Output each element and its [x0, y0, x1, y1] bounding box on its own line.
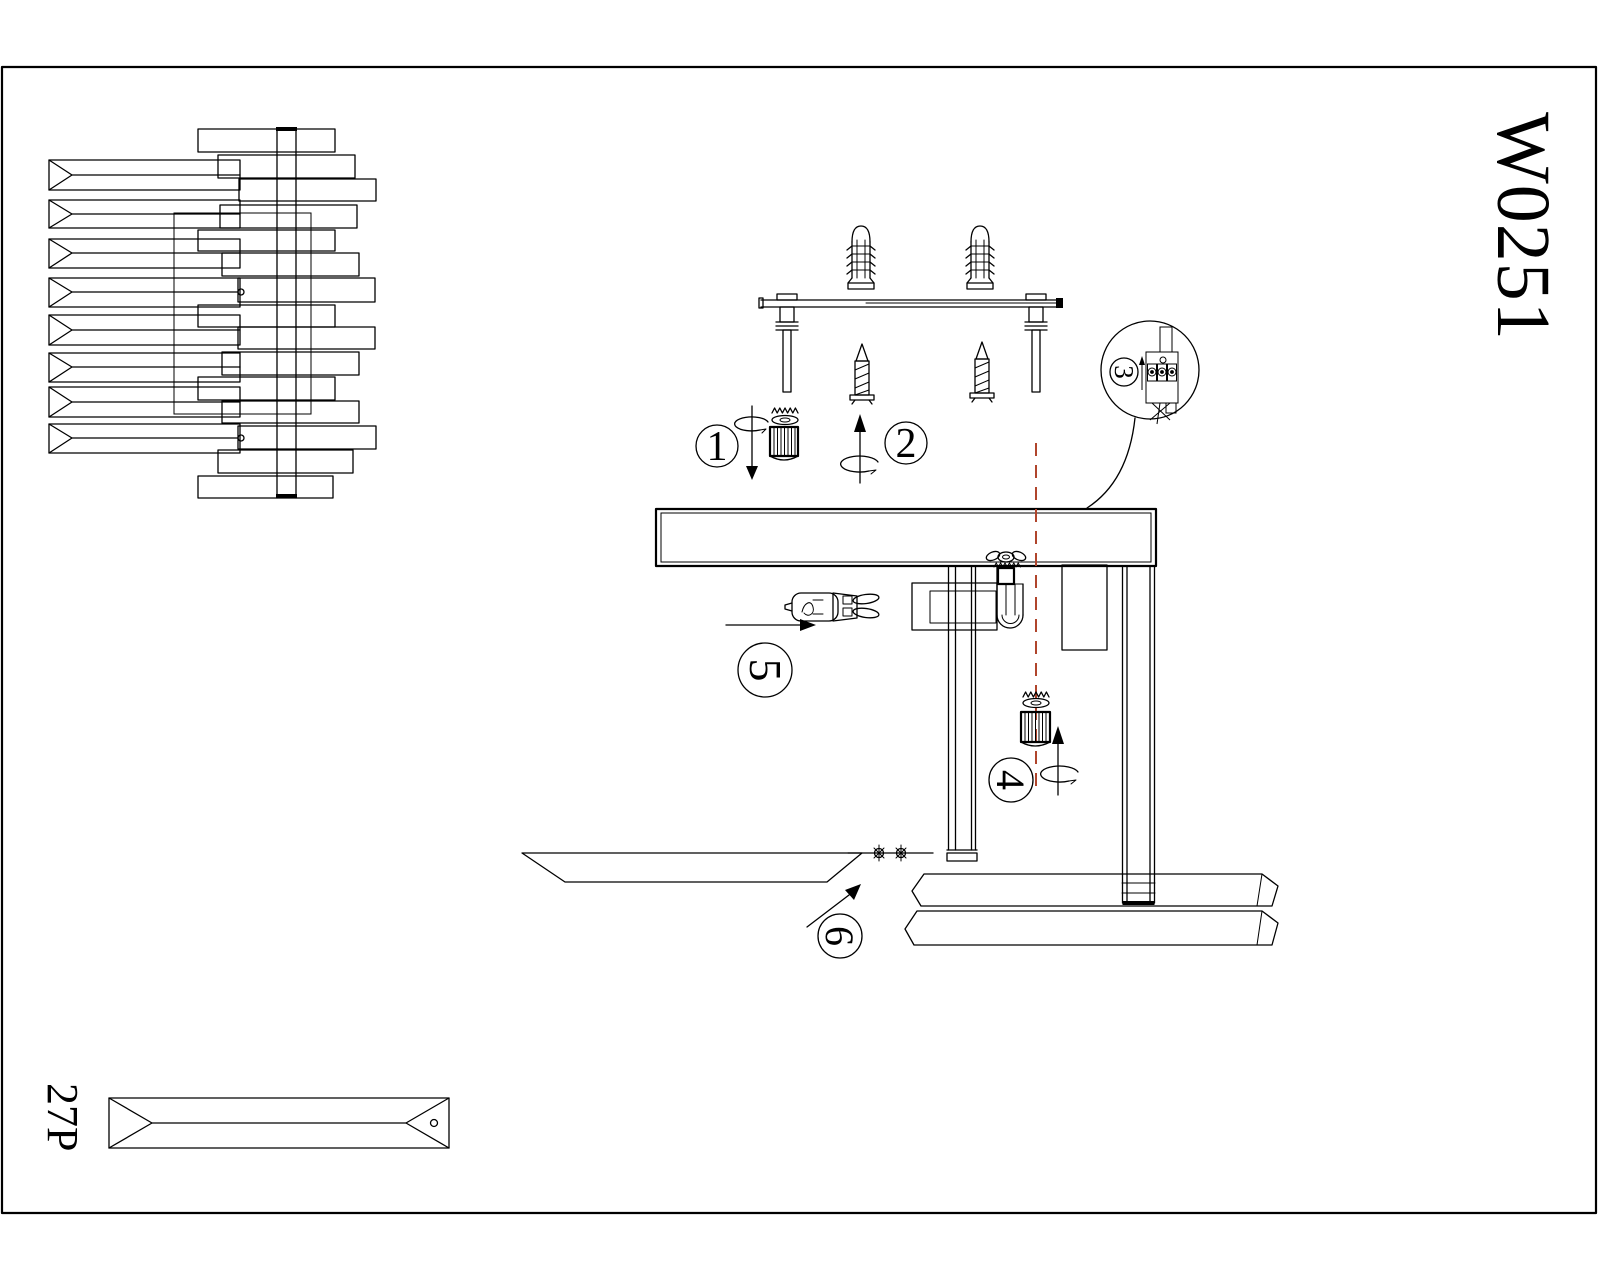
hook-connector-icon [848, 845, 933, 861]
step-1-group: 1 [696, 406, 798, 480]
socket-hanger-tubes [947, 567, 977, 861]
assembled-fixture-front-view [49, 127, 376, 498]
threaded-stud-right [1025, 294, 1047, 392]
threaded-stud-left [776, 294, 798, 392]
detail-leader-line [1087, 418, 1135, 508]
step-6-group: 6 [522, 845, 933, 958]
attach-arrow-icon [807, 884, 861, 927]
wing-screw-icon [985, 550, 1027, 567]
step-3-wiring-detail: 3 [1087, 321, 1199, 508]
mounting-bracket-bar [759, 298, 1063, 308]
sheet-border-frame [2, 67, 1596, 1213]
fixture-canopy [656, 509, 1156, 566]
step-2-group: 2 [841, 414, 927, 483]
step-3-number: 3 [1109, 365, 1139, 379]
step-4-number: 4 [988, 770, 1033, 790]
crystal-part-code-label: 27P [38, 1083, 87, 1151]
lamp-socket-assembly [912, 550, 1027, 861]
toothed-washer-icon [772, 408, 798, 425]
step-6-number: 6 [817, 926, 862, 946]
crystal-part-drawing [109, 1098, 449, 1148]
step-2-number: 2 [896, 421, 917, 467]
step-5-group: 5 [726, 593, 879, 697]
bottom-beam-bars [905, 874, 1278, 945]
halogen-bulb-icon [785, 593, 879, 621]
terminal-block-icon [1146, 327, 1178, 424]
front-crystal-bars [49, 160, 244, 453]
knurled-nut-icon [770, 427, 798, 460]
screw-up-rotation-arrow-icon [841, 414, 878, 483]
socket-side-bracket [997, 567, 1023, 628]
step-4-group: 4 [988, 692, 1078, 802]
crystal-bar-icon [522, 853, 862, 882]
socket-body-inner [930, 591, 996, 623]
wall-anchor-icon [847, 226, 875, 289]
mounting-screw-icon [850, 344, 874, 404]
back-plate-outline [174, 213, 311, 414]
mounting-screw-icon [970, 342, 994, 402]
support-rod [1122, 566, 1155, 905]
wall-anchor-icon [966, 226, 994, 289]
step-5-number: 5 [740, 659, 791, 682]
driver-box [1062, 565, 1107, 650]
screw-down-rotation-arrow-icon [735, 406, 768, 480]
fixture-stem [276, 127, 297, 498]
step-1-number: 1 [707, 424, 728, 470]
insert-arrow-icon [726, 619, 816, 631]
model-code-label: W0251 [1481, 112, 1565, 341]
knurled-nut-icon [1021, 712, 1050, 746]
back-crystal-stack [198, 129, 376, 498]
socket-collar [998, 568, 1014, 584]
assembly-instruction-sheet: W0251 27P [0, 0, 1600, 1280]
